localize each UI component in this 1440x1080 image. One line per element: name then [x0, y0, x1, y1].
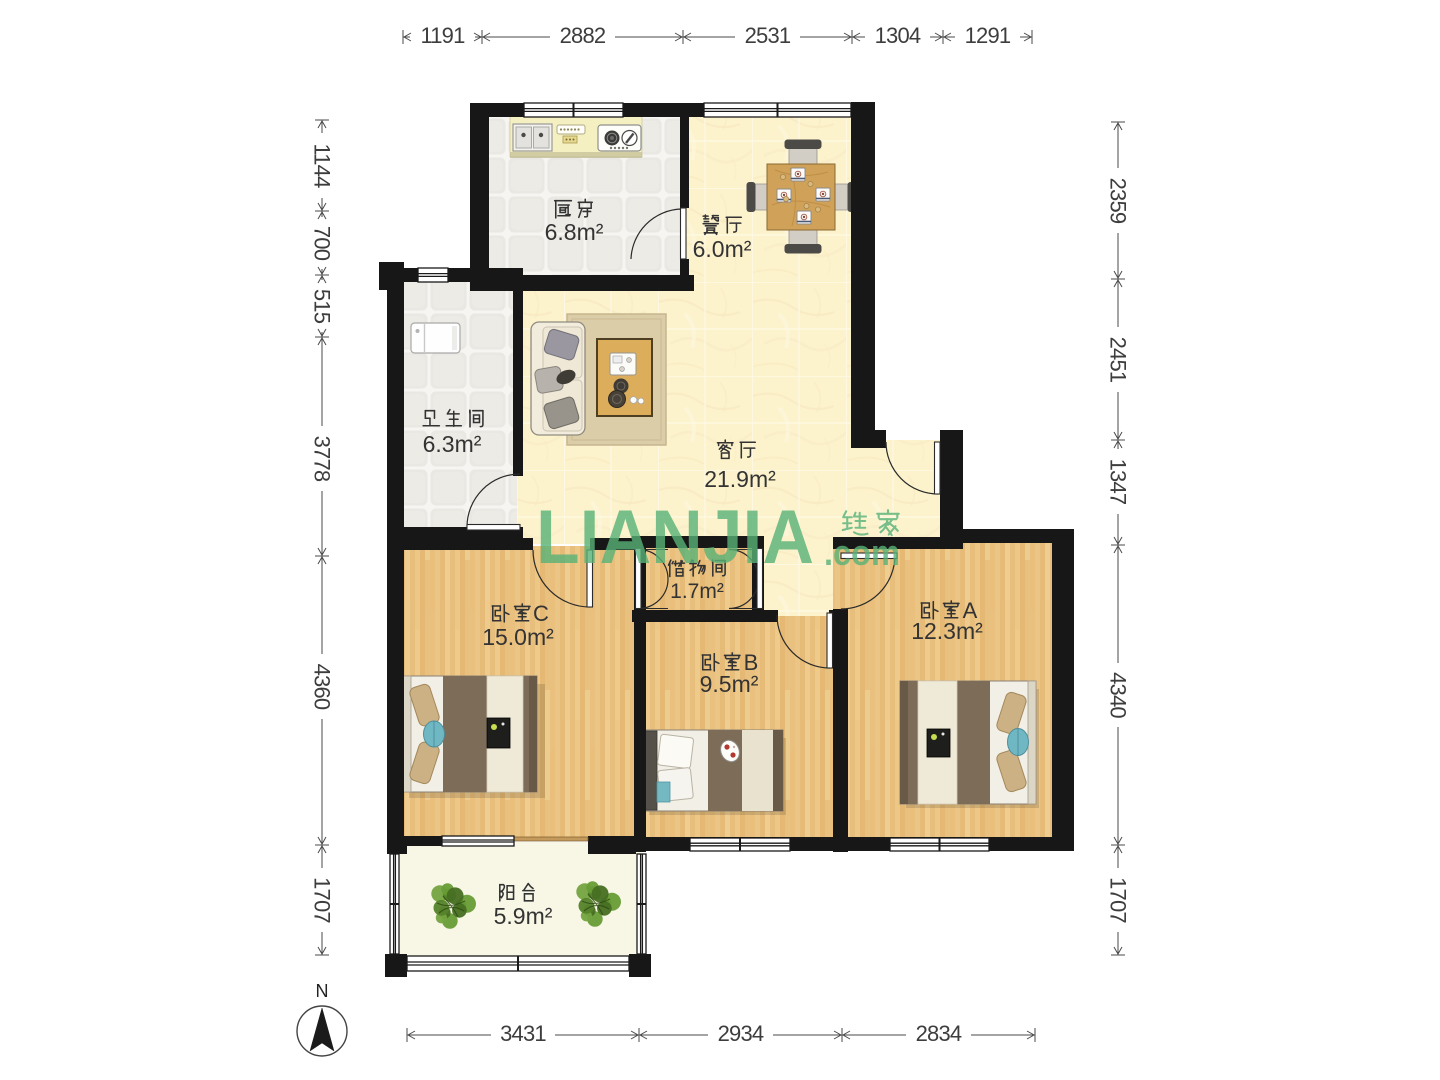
svg-text:1347: 1347 — [1106, 459, 1131, 505]
svg-text:2359: 2359 — [1106, 178, 1131, 224]
svg-text:9.5m²: 9.5m² — [700, 671, 759, 697]
svg-text:15.0m²: 15.0m² — [482, 624, 554, 650]
svg-text:2834: 2834 — [916, 1021, 962, 1046]
svg-text:1707: 1707 — [310, 877, 335, 923]
svg-text:12.3m²: 12.3m² — [911, 618, 983, 644]
svg-text:3431: 3431 — [500, 1021, 546, 1046]
svg-text:515: 515 — [310, 289, 335, 324]
svg-text:3778: 3778 — [310, 436, 335, 482]
svg-text:1144: 1144 — [310, 143, 335, 188]
svg-text:4340: 4340 — [1106, 672, 1131, 718]
svg-text:2934: 2934 — [718, 1021, 764, 1046]
svg-text:1291: 1291 — [965, 23, 1011, 48]
svg-text:.com: .com — [824, 532, 900, 573]
svg-text:2531: 2531 — [745, 23, 791, 48]
svg-text:4360: 4360 — [310, 664, 335, 710]
svg-text:1304: 1304 — [875, 23, 921, 48]
svg-text:2451: 2451 — [1106, 337, 1131, 383]
svg-text:6.3m²: 6.3m² — [423, 431, 482, 457]
svg-text:LIANJIA: LIANJIA — [536, 495, 814, 580]
svg-text:21.9m²: 21.9m² — [704, 466, 776, 492]
svg-text:6.0m²: 6.0m² — [693, 236, 752, 262]
svg-text:N: N — [316, 981, 329, 1001]
svg-text:700: 700 — [310, 226, 335, 261]
svg-text:1707: 1707 — [1106, 877, 1131, 923]
svg-text:1.7m²: 1.7m² — [670, 580, 724, 603]
svg-text:6.8m²: 6.8m² — [545, 219, 604, 245]
svg-text:2882: 2882 — [560, 23, 606, 48]
svg-text:1191: 1191 — [420, 23, 465, 48]
svg-text:5.9m²: 5.9m² — [494, 903, 553, 929]
svg-text:C: C — [533, 601, 549, 626]
